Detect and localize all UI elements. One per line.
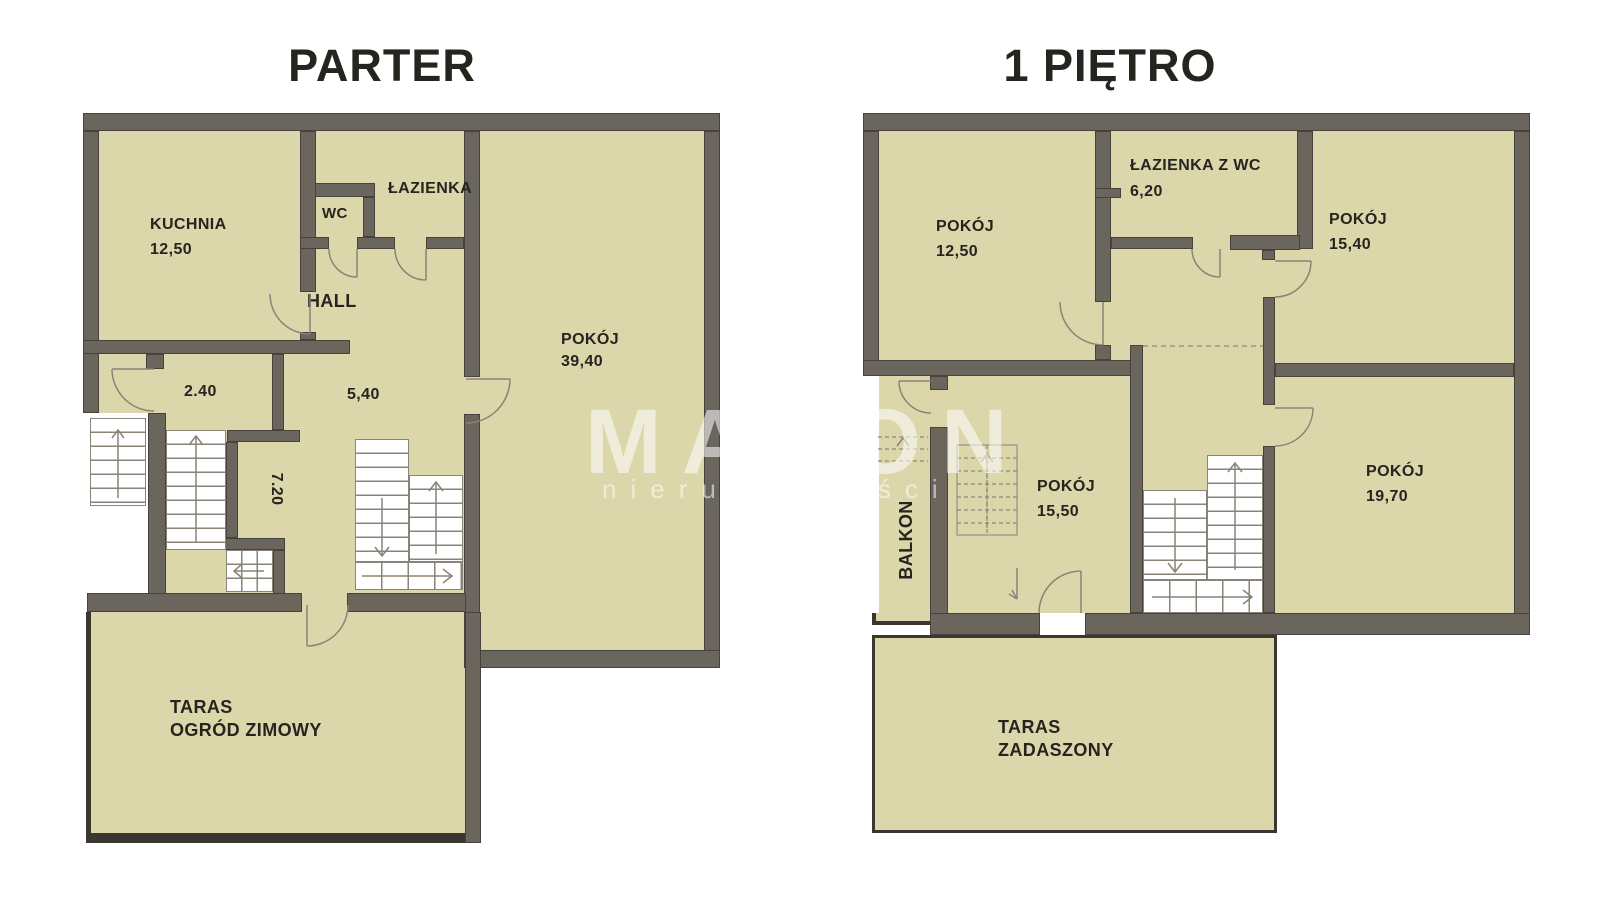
- title-pietro: 1 PIĘTRO: [910, 40, 1310, 92]
- room-label-taras2b: ZADASZONY: [998, 741, 1114, 759]
- room-label-hall: HALL: [307, 292, 357, 310]
- exterior-stairs: [90, 418, 146, 506]
- room-area-lazienka-wc: 6,20: [1130, 184, 1163, 200]
- wall: [930, 427, 948, 625]
- stair-flight: [409, 475, 463, 562]
- wall: [83, 113, 720, 131]
- wall: [300, 237, 329, 249]
- wall: [930, 376, 948, 390]
- wall: [863, 360, 1143, 376]
- wall: [863, 131, 879, 368]
- wall: [363, 197, 375, 237]
- wall: [148, 413, 166, 596]
- wall: [146, 354, 164, 369]
- room-label-balkon: BALKON: [897, 500, 915, 579]
- wall: [704, 131, 720, 668]
- room-label-pokoj3: POKÓJ: [1037, 479, 1095, 495]
- room-label-taras2: OGRÓD ZIMOWY: [170, 721, 322, 739]
- wall: [465, 612, 481, 843]
- room-area-pokoj3: 15,50: [1037, 504, 1079, 520]
- wall: [300, 131, 316, 292]
- pietro-taras: [872, 635, 1277, 833]
- wall: [464, 131, 480, 377]
- wall: [1095, 345, 1111, 360]
- title-parter: PARTER: [182, 40, 582, 92]
- wall: [1095, 188, 1121, 198]
- pietro-exterior-notch: [863, 368, 879, 613]
- room-label-taras: TARAS: [170, 698, 233, 716]
- wall: [83, 131, 99, 413]
- wall: [347, 593, 466, 612]
- room-area-lobby: 2.40: [184, 384, 217, 400]
- wall: [464, 650, 720, 668]
- room-area-corridor: 7.20: [268, 473, 284, 506]
- wall: [1297, 131, 1313, 249]
- taras-border-bottom: [86, 833, 481, 843]
- taras-border-left: [86, 612, 91, 843]
- wall: [1263, 297, 1275, 405]
- floorplan-canvas: PARTER 1 PIĘTRO KUCHNIA 12,50 WC ŁAZIENK…: [0, 0, 1600, 900]
- wall: [226, 442, 238, 538]
- room-label-lazienka-wc: ŁAZIENKA Z WC: [1130, 158, 1261, 174]
- wall: [273, 550, 285, 596]
- balkon-border-bottom: [872, 621, 933, 625]
- stair-flight: [1143, 490, 1207, 580]
- wall: [1130, 345, 1143, 613]
- room-label-taras2a: TARAS: [998, 718, 1061, 736]
- stair-landing: [355, 562, 463, 590]
- wall: [357, 237, 395, 249]
- room-label-pokoj2: POKÓJ: [1329, 212, 1387, 228]
- wall: [426, 237, 464, 249]
- wall: [1095, 131, 1111, 302]
- room-label-wc: WC: [322, 206, 348, 221]
- wall: [87, 593, 302, 612]
- room-label-pokoj4: POKÓJ: [1366, 464, 1424, 480]
- room-area-pokoj: 39,40: [561, 354, 603, 370]
- wall: [1275, 363, 1514, 377]
- wall: [227, 430, 300, 442]
- wall: [83, 340, 350, 354]
- wall: [1230, 235, 1300, 250]
- wall: [1085, 613, 1530, 635]
- wall: [224, 538, 285, 550]
- stair-flight: [166, 430, 226, 550]
- stair-flight: [1207, 455, 1263, 580]
- wall: [272, 354, 284, 430]
- wall: [1262, 250, 1275, 260]
- stair-flight: [355, 439, 409, 562]
- wall: [863, 113, 1530, 131]
- stair-landing: [1143, 580, 1263, 613]
- stair-landing: [226, 550, 273, 592]
- room-area-pokoj4: 19,70: [1366, 489, 1408, 505]
- room-area-hall: 5,40: [347, 387, 380, 403]
- wall: [1263, 446, 1275, 613]
- balkon-floor: [876, 368, 930, 622]
- room-label-lazienka: ŁAZIENKA: [388, 181, 472, 197]
- wall: [1514, 131, 1530, 635]
- wall: [315, 183, 375, 197]
- wall: [300, 332, 316, 340]
- room-area-pokoj2: 15,40: [1329, 237, 1371, 253]
- room-area-pokoj1: 12,50: [936, 244, 978, 260]
- room-label-pokoj1: POKÓJ: [936, 219, 994, 235]
- room-label-kuchnia: KUCHNIA: [150, 217, 227, 233]
- room-area-kuchnia: 12,50: [150, 242, 192, 258]
- wall: [1111, 237, 1193, 249]
- room-label-pokoj: POKÓJ: [561, 332, 619, 348]
- wall: [930, 613, 1040, 635]
